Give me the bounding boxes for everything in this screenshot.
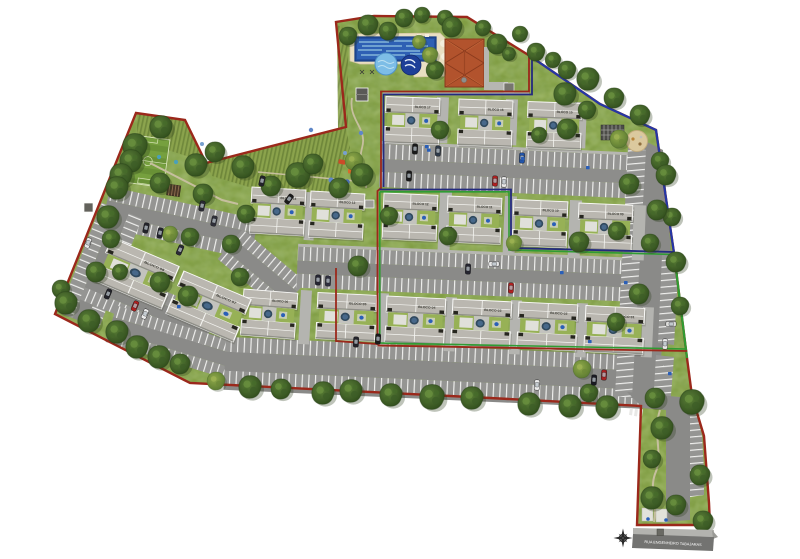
svg-text:BLOCO 15: BLOCO 15 [557, 110, 573, 115]
svg-text:BLOCO 11: BLOCO 11 [477, 205, 493, 210]
svg-text:BLOCO 16: BLOCO 16 [488, 107, 504, 112]
svg-text:BLOCO 09: BLOCO 09 [608, 212, 624, 217]
svg-text:BLOCO 12: BLOCO 12 [413, 202, 429, 207]
svg-text:BLOCO 05: BLOCO 05 [349, 302, 367, 307]
svg-text:BLOCO 10: BLOCO 10 [543, 208, 559, 213]
svg-text:BLOCO 02: BLOCO 02 [550, 311, 568, 316]
svg-text:BLOCO 04: BLOCO 04 [418, 305, 436, 310]
svg-text:BLOCO 17: BLOCO 17 [415, 105, 431, 110]
svg-text:BLOCO 03: BLOCO 03 [484, 308, 502, 313]
